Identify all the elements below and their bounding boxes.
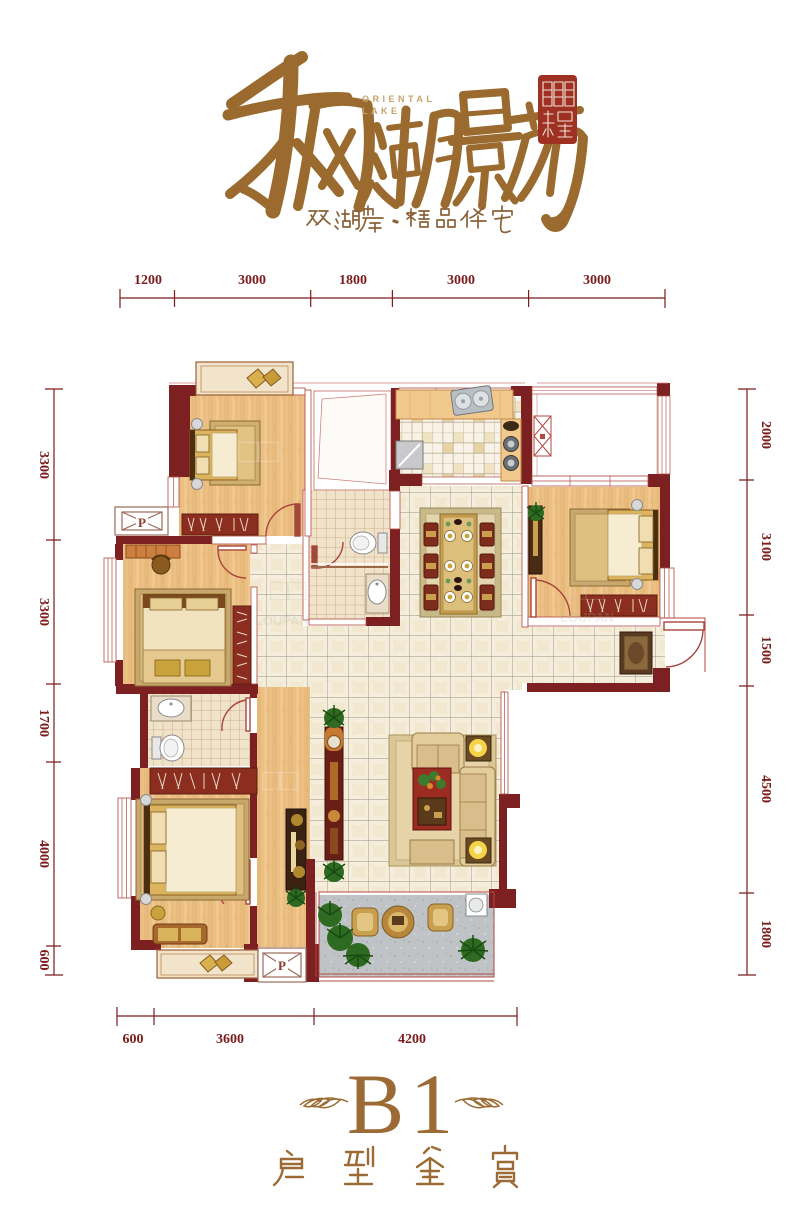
svg-text:600: 600: [123, 1032, 144, 1047]
svg-text:ORIENTAL: ORIENTAL: [362, 94, 435, 104]
svg-text:P: P: [278, 958, 286, 973]
svg-text:1800: 1800: [758, 920, 773, 948]
svg-text:B1: B1: [347, 1056, 459, 1152]
svg-text:□□: □□: [262, 764, 299, 797]
svg-text:3000: 3000: [447, 273, 475, 288]
svg-text:4500: 4500: [758, 775, 773, 803]
svg-text:□□: □□: [238, 432, 280, 470]
svg-text:3300: 3300: [36, 451, 51, 479]
svg-text:□□: □□: [270, 574, 307, 607]
svg-text:600: 600: [36, 950, 51, 971]
svg-text:LOUPAN: LOUPAN: [560, 610, 614, 625]
svg-text:1200: 1200: [134, 273, 162, 288]
svg-text:2000: 2000: [758, 421, 773, 449]
svg-text:LAKE: LAKE: [362, 106, 401, 116]
svg-text:□□: □□: [568, 574, 605, 607]
svg-text:LOUPAN: LOUPAN: [255, 613, 309, 628]
svg-text:3000: 3000: [238, 273, 266, 288]
svg-text:3300: 3300: [36, 598, 51, 626]
svg-text:P: P: [138, 515, 146, 530]
svg-text:3000: 3000: [583, 273, 611, 288]
svg-text:4200: 4200: [398, 1032, 426, 1047]
svg-text:3600: 3600: [216, 1032, 244, 1047]
svg-text:1800: 1800: [339, 273, 367, 288]
svg-text:4000: 4000: [36, 840, 51, 868]
svg-text:3100: 3100: [758, 533, 773, 561]
svg-text:1700: 1700: [36, 709, 51, 737]
svg-text:1500: 1500: [758, 636, 773, 664]
